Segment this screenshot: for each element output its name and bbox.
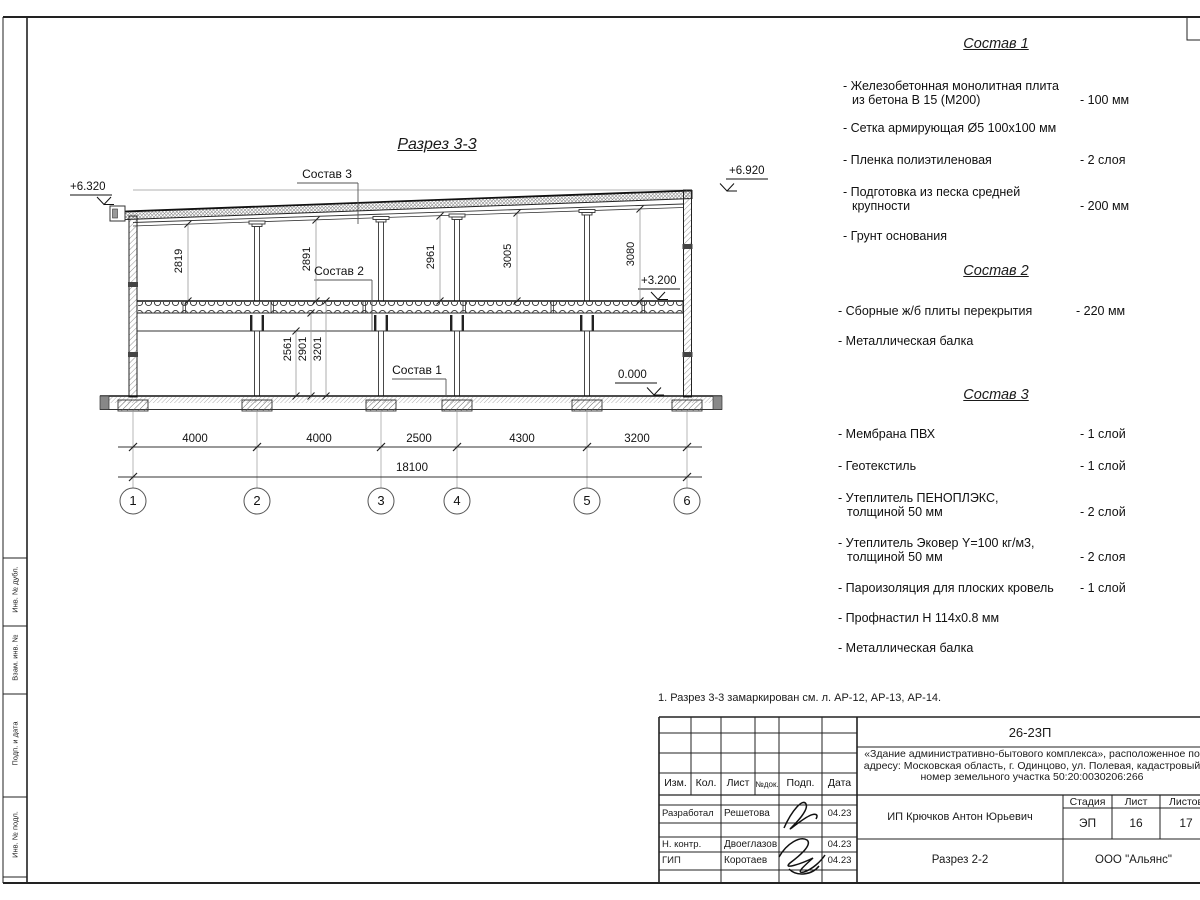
axis-2: 2 — [244, 493, 270, 508]
item-text: - Пароизоляция для плоских кровель — [838, 581, 1054, 595]
project-code: 26-23П — [860, 725, 1200, 740]
client-name: ИП Крючков Антон Юрьевич — [860, 811, 1060, 823]
item-text: - Геотекстиль — [838, 459, 916, 473]
item-value: - 1 слой — [1080, 459, 1126, 473]
sostav3-title: Состав 3 — [936, 387, 1056, 403]
item-text: - Мембрана ПВХ — [838, 427, 935, 441]
item-text: из бетона В 15 (М200) — [843, 93, 1083, 107]
item-text: толщиной 50 мм — [838, 550, 1088, 564]
col-kol: Кол. — [691, 777, 721, 789]
callout-sostav2: Состав 2 — [309, 264, 369, 278]
callout-sostav3: Состав 3 — [297, 167, 357, 181]
item-text: - Металлическая балка — [838, 641, 973, 655]
margin-label: Подп. и дата — [11, 709, 20, 779]
row-date: 04.23 — [822, 855, 857, 866]
row-date: 04.23 — [822, 839, 857, 850]
sostav1-title: Состав 1 — [936, 36, 1056, 52]
list-item: - Утеплитель ПЕНОПЛЭКС, толщиной 50 мм — [838, 491, 1078, 519]
project-description: «Здание административно-бытового комплек… — [860, 749, 1200, 784]
item-text: крупности — [843, 199, 1083, 213]
item-text: - Сборные ж/б плиты перекрытия — [838, 304, 1032, 318]
dim-upper-1: 2819 — [173, 231, 185, 291]
item-value: - 1 слой — [1080, 581, 1126, 595]
margin-label: Взам. инв. № — [11, 623, 20, 693]
dim-span-5: 3200 — [612, 433, 662, 445]
stage-label: Стадия — [1063, 796, 1112, 808]
item-text: - Железобетонная монолитная плита — [843, 79, 1083, 93]
item-value: - 220 мм — [1076, 304, 1125, 318]
item-text: - Сетка армирующая Ø5 100х100 мм — [843, 121, 1056, 135]
list-item: - Утеплитель Эковер Y=100 кг/м3, толщино… — [838, 536, 1088, 564]
item-text: - Подготовка из песка средней — [843, 185, 1083, 199]
elevation-ground: 0.000 — [618, 369, 647, 381]
col-izm: Изм. — [660, 777, 691, 789]
row-role: Разработал — [662, 808, 714, 819]
row-name: Двоеглазов — [724, 839, 777, 850]
item-text: - Утеплитель Эковер Y=100 кг/м3, — [838, 536, 1088, 550]
axis-3: 3 — [368, 493, 394, 508]
sheets-label: Листов — [1160, 796, 1200, 808]
col-ndok: №док. — [755, 780, 779, 789]
axis-1: 1 — [120, 493, 146, 508]
item-value: - 2 слоя — [1080, 550, 1125, 564]
item-text: - Металлическая балка — [838, 334, 973, 348]
axis-5: 5 — [574, 493, 600, 508]
row-name: Решетова — [724, 808, 770, 819]
stage-value: ЭП — [1063, 816, 1112, 830]
dim-span-3: 2500 — [394, 433, 444, 445]
margin-label: Инв. № дубл. — [11, 555, 20, 625]
item-value: - 2 слоя — [1080, 153, 1125, 167]
drawing-sheet: { "drawing": { "title": "Разрез 3-3", "c… — [0, 0, 1200, 900]
col-data: Дата — [822, 777, 857, 789]
signatures — [779, 802, 825, 874]
list-item: - Железобетонная монолитная плита из бет… — [843, 79, 1083, 107]
doc-title: Разрез 2-2 — [860, 854, 1060, 866]
dim-total: 18100 — [382, 462, 442, 474]
item-value: - 200 мм — [1080, 199, 1129, 213]
sheets-value: 17 — [1160, 816, 1200, 830]
item-text: - Пленка полиэтиленовая — [843, 153, 992, 167]
sostav2-title: Состав 2 — [936, 263, 1056, 279]
row-role: Н. контр. — [662, 839, 701, 850]
axis-6: 6 — [674, 493, 700, 508]
section-title: Разрез 3-3 — [362, 136, 512, 154]
dim-lower-1: 2561 — [282, 319, 294, 379]
item-text: - Грунт основания — [843, 229, 947, 243]
axis-bubbles — [120, 488, 700, 514]
dim-span-2: 4000 — [294, 433, 344, 445]
dim-upper-4: 3005 — [502, 226, 514, 286]
dim-upper-5: 3080 — [625, 224, 637, 284]
sheet-value: 16 — [1112, 816, 1160, 830]
dim-upper-3: 2961 — [425, 227, 437, 287]
row-role: ГИП — [662, 855, 681, 866]
company-name: ООО "Альянс" — [1063, 854, 1200, 866]
note-text: 1. Разрез 3-3 замаркирован см. л. АР-12,… — [658, 692, 941, 704]
elevation-eave-left: +6.320 — [70, 181, 106, 193]
row-name: Коротаев — [724, 855, 767, 866]
dim-span-4: 4300 — [497, 433, 547, 445]
item-value: - 100 мм — [1080, 93, 1129, 107]
item-value: - 1 слой — [1080, 427, 1126, 441]
col-podp: Подп. — [779, 777, 822, 789]
list-item: - Подготовка из песка средней крупности — [843, 185, 1083, 213]
item-text: - Утеплитель ПЕНОПЛЭКС, — [838, 491, 1078, 505]
item-value: - 2 слой — [1080, 505, 1126, 519]
dim-lower-2: 2901 — [297, 319, 309, 379]
callout-sostav1: Состав 1 — [387, 363, 447, 377]
dim-span-1: 4000 — [170, 433, 220, 445]
dim-upper-2: 2891 — [301, 229, 313, 289]
elevation-top-right: +6.920 — [729, 165, 765, 177]
margin-label: Инв. № подл. — [11, 800, 20, 870]
dim-lower-3: 3201 — [312, 319, 324, 379]
axis-4: 4 — [444, 493, 470, 508]
row-date: 04.23 — [822, 808, 857, 819]
col-list: Лист — [721, 777, 755, 789]
item-text: толщиной 50 мм — [838, 505, 1078, 519]
item-text: - Профнастил Н 114х0.8 мм — [838, 611, 999, 625]
elevation-floor2: +3.200 — [641, 275, 677, 287]
sheet-label: Лист — [1112, 796, 1160, 808]
